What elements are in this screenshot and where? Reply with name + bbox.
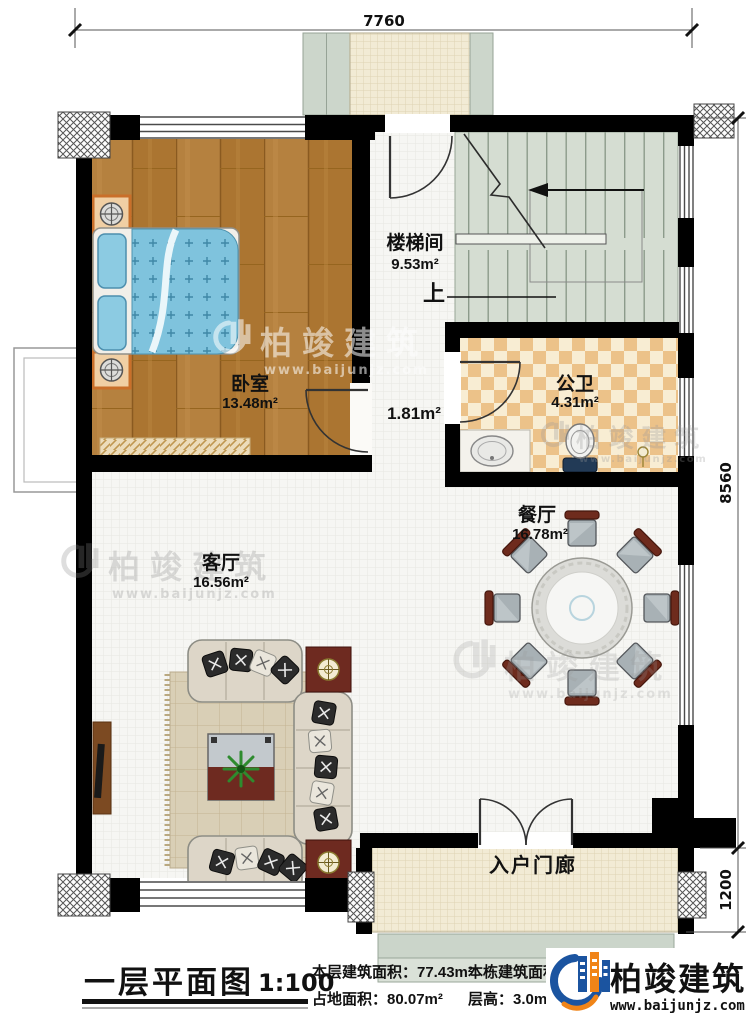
plan-title: 一层平面图 bbox=[84, 965, 254, 1000]
area-hallway: 1.81m² bbox=[387, 404, 441, 423]
window bbox=[140, 116, 305, 139]
label-living: 客厅 bbox=[202, 551, 240, 574]
svg-text:www.baijunjz.com: www.baijunjz.com bbox=[264, 363, 429, 378]
dim-right-porch: 1200 bbox=[717, 869, 735, 911]
coffee-table bbox=[208, 734, 274, 800]
stat-floor-area: 本层建筑面积：77.43m² bbox=[312, 963, 473, 981]
label-dining: 餐厅 bbox=[518, 503, 556, 526]
stat-land-area: 占地面积：80.07m² bbox=[312, 990, 443, 1008]
window bbox=[679, 146, 694, 218]
brand-website: www.baijunjz.com bbox=[610, 998, 745, 1014]
nightstand bbox=[93, 352, 130, 388]
window bbox=[679, 565, 694, 725]
end-table bbox=[306, 647, 351, 692]
label-bathroom: 公卫 bbox=[556, 373, 594, 395]
svg-text:www.baijunjz.com: www.baijunjz.com bbox=[579, 454, 707, 465]
area-dining: 16.78m² bbox=[512, 526, 568, 543]
side-platform bbox=[14, 348, 78, 492]
label-stairs-up: 上 bbox=[423, 281, 445, 306]
floor-plan-drawing: 7760 8560 1200 柏竣建筑 www.baijunjz.com 柏竣建… bbox=[0, 0, 750, 1020]
title-underline bbox=[82, 999, 308, 1004]
svg-text:www.baijunjz.com: www.baijunjz.com bbox=[508, 687, 673, 702]
brand-name: 柏竣建筑 bbox=[610, 961, 746, 997]
area-bedroom: 13.48m² bbox=[222, 395, 278, 412]
label-stairwell: 楼梯间 bbox=[386, 231, 443, 254]
area-living: 16.56m² bbox=[193, 574, 249, 591]
dim-top-width: 7760 bbox=[363, 12, 405, 30]
rear-porch-structure bbox=[303, 33, 493, 115]
sink bbox=[471, 436, 513, 466]
area-bathroom: 4.31m² bbox=[551, 394, 599, 411]
window bbox=[140, 881, 305, 908]
svg-text:柏竣建筑: 柏竣建筑 bbox=[576, 424, 707, 453]
area-stairwell: 9.53m² bbox=[391, 256, 439, 273]
window bbox=[679, 267, 694, 333]
brand-logo: 柏竣建筑 www.baijunjz.com bbox=[546, 948, 746, 1018]
nightstand bbox=[93, 196, 130, 232]
svg-text:柏竣建筑: 柏竣建筑 bbox=[260, 325, 428, 361]
svg-text:柏竣建筑: 柏竣建筑 bbox=[108, 549, 276, 585]
label-porch: 入户门廊 bbox=[489, 853, 577, 877]
stat-story-height: 层高：3.0m bbox=[468, 990, 547, 1008]
svg-text:柏竣建筑: 柏竣建筑 bbox=[504, 649, 672, 685]
dim-right-main: 8560 bbox=[717, 462, 735, 504]
floor-plan-page: 7760 8560 1200 柏竣建筑 www.baijunjz.com 柏竣建… bbox=[0, 0, 750, 1020]
tv-cabinet bbox=[93, 722, 111, 814]
label-bedroom: 卧室 bbox=[231, 372, 269, 395]
dining-table bbox=[532, 558, 632, 658]
